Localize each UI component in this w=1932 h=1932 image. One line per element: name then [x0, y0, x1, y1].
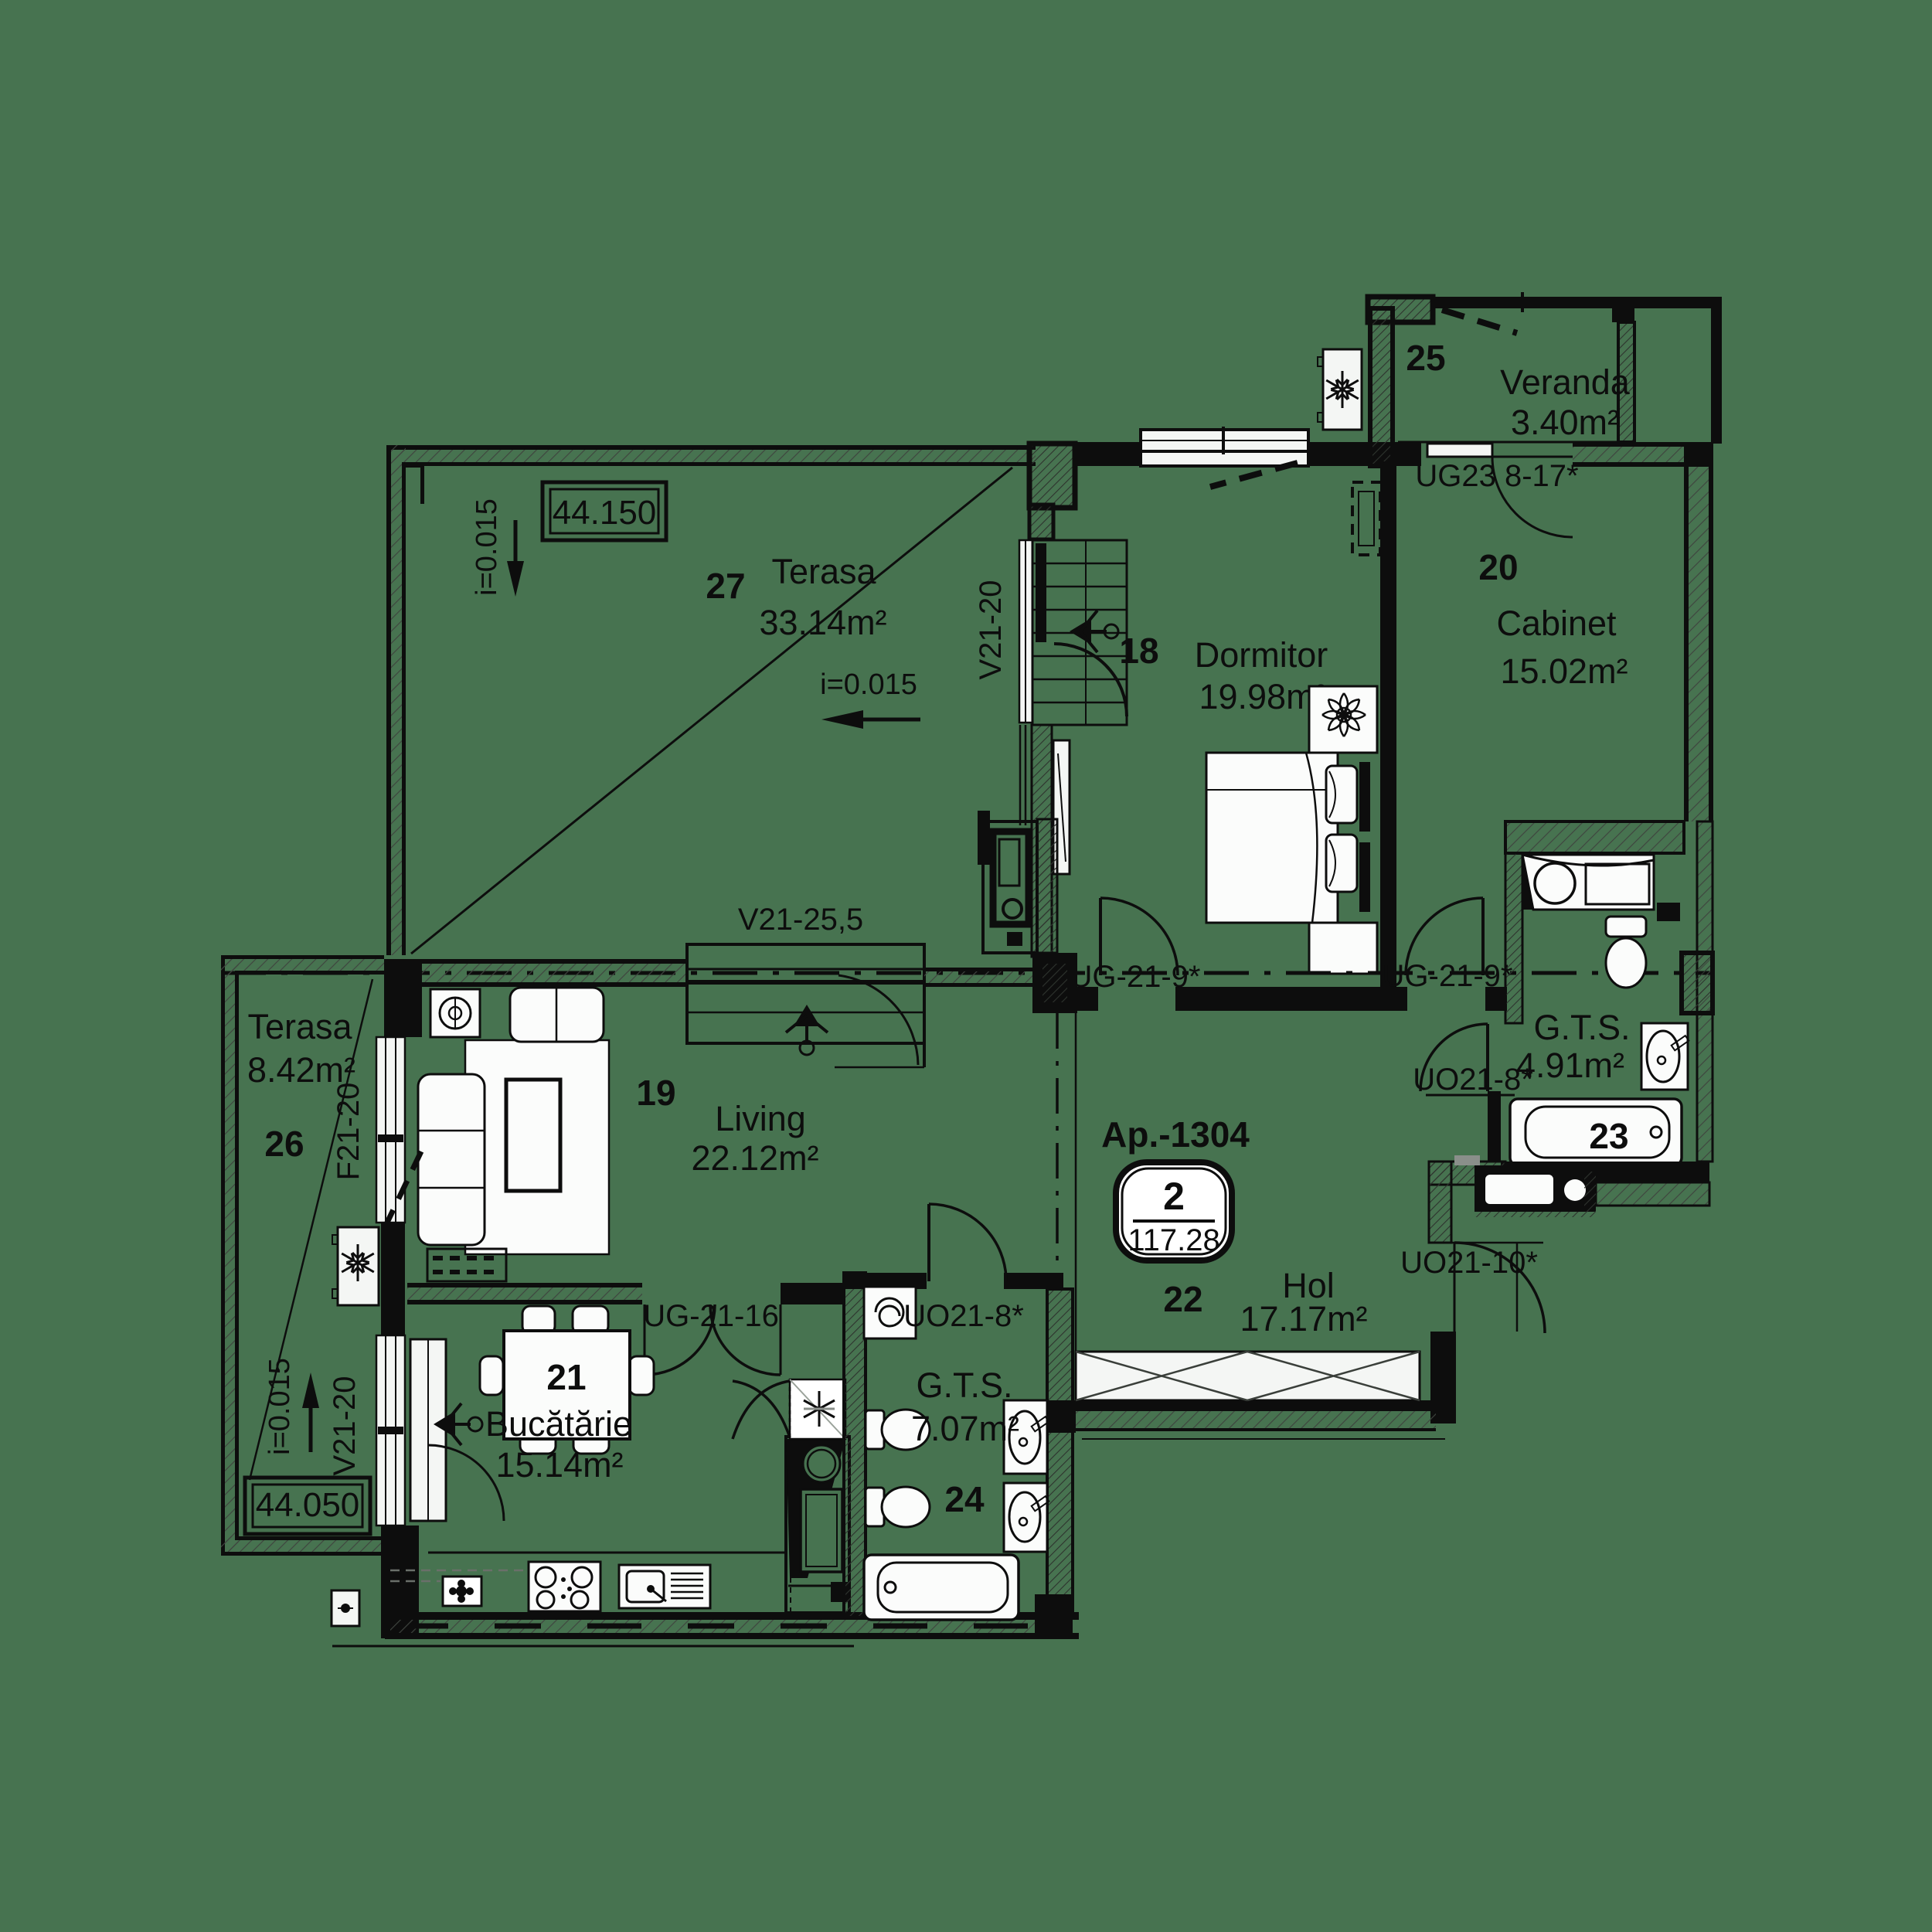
svg-text:25: 25 — [1406, 338, 1445, 378]
svg-text:i=0.015: i=0.015 — [820, 668, 917, 701]
svg-text:V21-25,5: V21-25,5 — [738, 903, 863, 937]
svg-text:22.12m²: 22.12m² — [691, 1138, 818, 1178]
svg-text:Veranda: Veranda — [1500, 362, 1631, 402]
svg-text:UG-21-9*: UG-21-9* — [1383, 959, 1513, 993]
svg-text:19.98m²: 19.98m² — [1199, 677, 1326, 716]
svg-text:44.050: 44.050 — [256, 1486, 360, 1524]
svg-text:G.T.S.: G.T.S. — [916, 1366, 1012, 1405]
svg-text:i=0.015: i=0.015 — [264, 1358, 296, 1455]
svg-text:V21-20: V21-20 — [328, 1376, 362, 1476]
svg-text:20: 20 — [1478, 547, 1518, 587]
svg-text:G.T.S.: G.T.S. — [1533, 1008, 1630, 1047]
svg-text:Terasa: Terasa — [247, 1007, 352, 1046]
svg-text:F21-20: F21-20 — [332, 1083, 366, 1181]
svg-text:UG-21-9*: UG-21-9* — [1070, 960, 1201, 994]
svg-text:33.14m²: 33.14m² — [759, 603, 886, 642]
svg-text:UG23 8-17*: UG23 8-17* — [1415, 459, 1578, 493]
svg-text:UO21-8*: UO21-8* — [903, 1299, 1024, 1333]
svg-text:19: 19 — [636, 1073, 675, 1113]
svg-text:23: 23 — [1589, 1116, 1628, 1156]
svg-text:Bucătărie: Bucătărie — [485, 1404, 632, 1444]
svg-text:UO21-8*: UO21-8* — [1413, 1063, 1533, 1097]
svg-text:Terasa: Terasa — [771, 552, 876, 591]
svg-text:Ap.-1304: Ap.-1304 — [1101, 1114, 1250, 1155]
svg-text:2: 2 — [1163, 1175, 1185, 1218]
svg-text:22: 22 — [1163, 1279, 1202, 1319]
svg-text:24: 24 — [944, 1479, 985, 1519]
svg-text:Living: Living — [715, 1099, 806, 1138]
svg-text:15.14m²: 15.14m² — [495, 1445, 623, 1485]
svg-text:Dormitor: Dormitor — [1195, 635, 1328, 675]
svg-text:UO21-10*: UO21-10* — [1400, 1246, 1538, 1280]
svg-text:21: 21 — [546, 1357, 586, 1397]
svg-text:3.40m²: 3.40m² — [1511, 403, 1619, 442]
svg-text:Cabinet: Cabinet — [1496, 604, 1617, 643]
svg-text:17.17m²: 17.17m² — [1240, 1299, 1367, 1338]
svg-text:26: 26 — [264, 1124, 304, 1164]
svg-text:7.07m²: 7.07m² — [911, 1409, 1019, 1448]
svg-text:18: 18 — [1119, 631, 1158, 671]
svg-text:i=0.015: i=0.015 — [471, 498, 503, 596]
svg-text:27: 27 — [706, 566, 745, 606]
svg-text:15.02m²: 15.02m² — [1500, 651, 1628, 691]
svg-text:117.28: 117.28 — [1128, 1223, 1219, 1257]
svg-text:44.150: 44.150 — [553, 494, 657, 532]
svg-text:V21-20: V21-20 — [974, 580, 1008, 680]
